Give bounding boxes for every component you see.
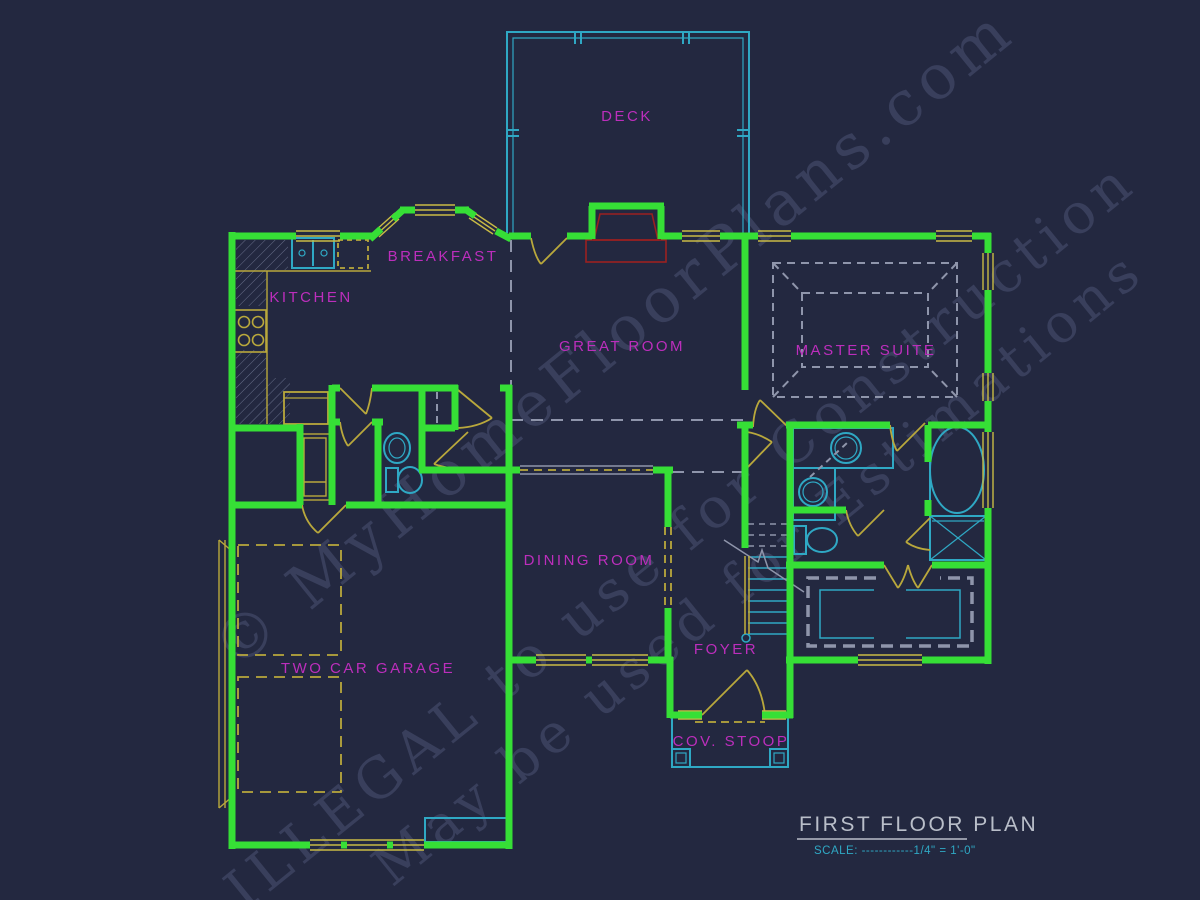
room-label-breakfast: BREAKFAST [388,248,499,265]
counter-hatch [236,240,290,424]
front-door [702,670,765,715]
room-label-kitchen: KITCHEN [269,289,352,306]
room-label-garage: TWO CAR GARAGE [281,660,455,677]
walkin-closet-doors [884,565,932,588]
shower-door [906,518,930,550]
kitchen-sink [292,238,334,268]
room-label-great-room: GREAT ROOM [559,338,685,355]
walkin-closet-dashed [808,578,972,646]
room-label-cov-stoop: COV. STOOP [673,733,790,750]
room-label-deck: DECK [601,108,653,125]
closet-shelves [820,590,960,638]
floor-plan-canvas: © MyHomeFloorPlans.com ILLEGAL to use fo… [0,0,1200,900]
room-label-foyer: FOYER [694,641,758,658]
master-shower [930,516,986,560]
refrigerator [284,392,328,424]
cooktop [234,310,266,352]
floor-plan-drawing: © MyHomeFloorPlans.com ILLEGAL to use fo… [0,0,1200,900]
drawing-title: FIRST FLOOR PLAN [799,813,1038,836]
watermark: © MyHomeFloorPlans.com ILLEGAL to use fo… [198,0,1156,900]
drawing-scale: SCALE: ------------1/4" = 1'-0" [814,845,976,857]
powder-door [340,422,372,446]
deck-door [531,238,567,264]
dishwasher [338,240,368,268]
title-block: FIRST FLOOR PLAN SCALE: ------------1/4"… [797,813,1038,857]
room-label-dining-room: DINING ROOM [524,552,655,569]
room-label-master-suite: MASTER SUITE [796,342,937,359]
laundry-door [340,388,372,414]
pantry-shelves [300,434,330,500]
fireplace [586,214,666,262]
powder-sink [384,433,410,463]
